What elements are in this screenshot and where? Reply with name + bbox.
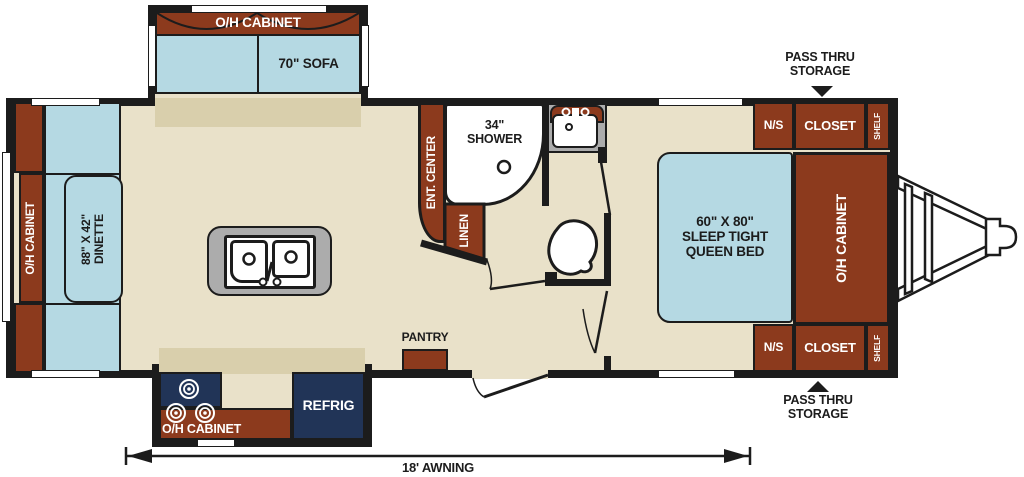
window-sofa-slide-left — [148, 25, 156, 87]
hitch-bar-top — [898, 176, 989, 230]
bed-label: 60" X 80" SLEEP TIGHT QUEEN BED — [682, 215, 768, 260]
ent-center-label: ENT. CENTER — [426, 136, 439, 209]
bedroom-cabinet-label: O/H CABINET — [834, 194, 849, 283]
pantry — [402, 349, 448, 371]
window-bedroom-top — [658, 98, 743, 106]
sink-basin-right — [272, 240, 310, 278]
wall-stub-below-sink — [598, 147, 607, 163]
ns-top-label: N/S — [764, 119, 783, 132]
rv-floor-plan: O/H CABINET 70" SOFA O/H CABINET 88" X 4… — [0, 0, 1024, 477]
pass-thru-bottom-arrow-icon — [807, 381, 829, 392]
window-top-left — [31, 98, 100, 106]
shelf-bottom: SHELF — [866, 324, 890, 372]
nightstand-top: N/S — [753, 102, 794, 150]
linen-label: LINEN — [459, 214, 472, 248]
ns-bottom-label: N/S — [764, 341, 783, 354]
wall-toilet-south — [545, 279, 611, 286]
wall-stub-bottom — [604, 356, 611, 378]
closet-top-label: CLOSET — [804, 119, 856, 133]
closet-top: CLOSET — [794, 102, 866, 150]
wall-bath-bedroom — [604, 213, 611, 286]
bedroom-overhead-cabinet: O/H CABINET — [793, 152, 890, 325]
window-sofa-slide-right — [361, 25, 369, 87]
kitchen-slideout-shading — [159, 348, 365, 374]
hitch-coupler — [986, 219, 1016, 255]
awning-label: 18' AWNING — [353, 461, 523, 476]
entry-door-opening — [472, 369, 548, 379]
queen-bed: 60" X 80" SLEEP TIGHT QUEEN BED — [657, 152, 793, 323]
shelf-bottom-label: SHELF — [873, 335, 882, 362]
kitchen-counter-cabinet: O/H CABINET — [159, 408, 292, 440]
shower-label: 34" SHOWER — [467, 119, 522, 147]
sink-basin-left — [230, 240, 268, 283]
dinette-table-label: 88" X 42" DINETTE — [80, 214, 106, 265]
bath-sink-basin — [552, 114, 598, 148]
pass-thru-storage-top-label: PASS THRU STORAGE — [752, 50, 888, 80]
refrigerator: REFRIG — [292, 372, 365, 440]
dinette-cabinet-bottom — [14, 303, 44, 373]
wall-toilet-south-notch — [545, 272, 557, 280]
closet-bottom: CLOSET — [794, 324, 866, 372]
closet-bottom-label: CLOSET — [804, 341, 856, 355]
hitch-brace-1 — [905, 184, 912, 294]
bench-divider-bottom — [46, 303, 119, 305]
entry-door-arc — [473, 378, 484, 397]
stove — [159, 372, 222, 408]
sofa-slideout-shading — [155, 98, 361, 127]
pantry-label: PANTRY — [382, 330, 468, 345]
kitchen-slide-step — [197, 439, 235, 447]
linen-label-holder: LINEN — [447, 206, 483, 256]
pass-thru-storage-bottom-label: PASS THRU STORAGE — [750, 393, 886, 423]
entertainment-center: ENT. CENTER — [418, 102, 446, 243]
window-rear-wall — [2, 152, 11, 322]
shelf-top: SHELF — [866, 102, 890, 150]
sofa: 70" SOFA — [155, 34, 361, 94]
dinette-table: 88" X 42" DINETTE — [64, 175, 123, 303]
kitchen-cabinet-label: O/H CABINET — [161, 423, 241, 438]
refrig-label: REFRIG — [303, 398, 355, 413]
dinette-cabinet-label: O/H CABINET — [25, 202, 38, 275]
shelf-top-label: SHELF — [873, 113, 882, 140]
nightstand-bottom: N/S — [753, 324, 794, 372]
pass-thru-top-arrow-icon — [811, 86, 833, 97]
dinette-cabinet-top — [14, 102, 44, 173]
hitch-brace-2 — [925, 193, 932, 282]
sofa-label: 70" SOFA — [258, 36, 359, 92]
window-sofa-slide-top — [191, 5, 327, 13]
window-bedroom-bottom — [658, 370, 735, 378]
wall-shower-sink — [542, 103, 549, 206]
awning-arrow-right — [724, 449, 748, 463]
dinette-overhead-cabinet: O/H CABINET — [19, 173, 44, 303]
awning-arrow-left — [128, 449, 152, 463]
window-bottom-left — [31, 370, 100, 378]
sofa-overhead-cabinet: O/H CABINET — [155, 11, 361, 36]
sofa-cabinet-label: O/H CABINET — [215, 16, 301, 31]
hitch-bar-bottom — [898, 245, 989, 301]
